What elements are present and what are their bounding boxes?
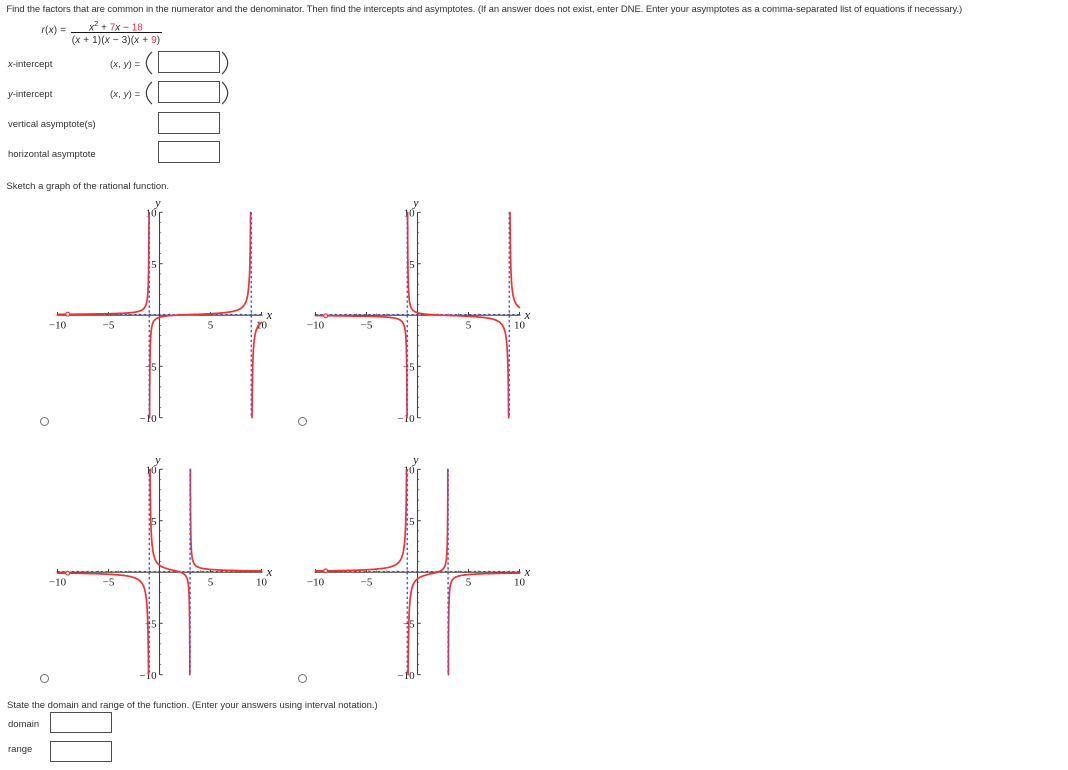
svg-text:5: 5 [208,320,214,332]
svg-text:−10: −10 [49,577,67,589]
svg-text:y: y [412,453,419,466]
svg-text:5: 5 [466,320,472,332]
svg-text:−10: −10 [49,320,67,332]
svg-text:−5: −5 [403,361,415,373]
svg-text:−10: −10 [139,413,157,425]
svg-text:5: 5 [466,577,472,589]
svg-text:y: y [154,196,161,209]
svg-text:x: x [266,565,273,579]
svg-text:y: y [154,453,161,466]
svg-text:−5: −5 [361,320,373,332]
svg-text:y: y [412,196,419,209]
svg-text:−10: −10 [307,577,325,589]
svg-text:−5: −5 [145,618,157,630]
svg-text:5: 5 [409,516,415,528]
svg-text:x: x [524,308,531,322]
svg-text:−5: −5 [361,577,373,589]
svg-text:5: 5 [151,259,157,271]
svg-text:5: 5 [151,516,157,528]
svg-text:−5: −5 [103,320,115,332]
svg-text:x: x [266,308,273,322]
svg-text:−10: −10 [397,670,415,682]
svg-text:−10: −10 [307,320,325,332]
svg-text:x: x [524,565,531,579]
svg-text:−5: −5 [145,361,157,373]
svg-text:5: 5 [208,577,214,589]
svg-text:−5: −5 [103,577,115,589]
svg-text:5: 5 [409,259,415,271]
